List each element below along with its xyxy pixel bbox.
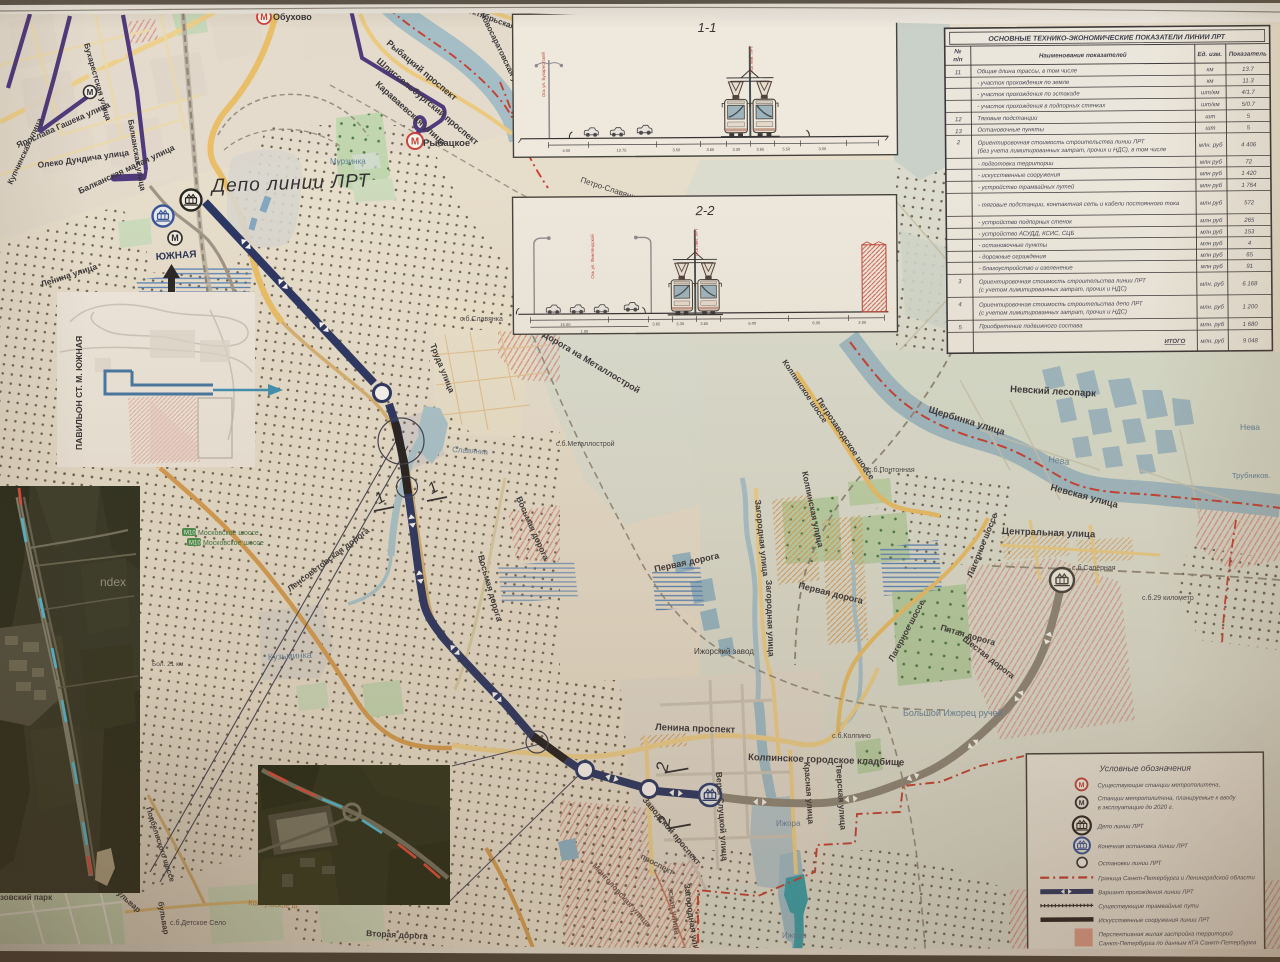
svg-text:Условные обозначения: Условные обозначения [1098, 763, 1191, 774]
svg-text:Депо линии ЛРТ: Депо линии ЛРТ [1097, 824, 1145, 830]
svg-text:4/1.7: 4/1.7 [1241, 90, 1255, 96]
svg-text:М10: М10 [184, 531, 196, 537]
svg-text:- участок прохождения в подпор: - участок прохождения в подпорных стенка… [977, 103, 1106, 110]
svg-text:Рыбацкое: Рыбацкое [423, 138, 470, 149]
svg-text:3.30: 3.30 [676, 321, 685, 326]
svg-text:млн руб: млн руб [1200, 230, 1223, 236]
svg-text:3.65: 3.65 [706, 147, 715, 152]
svg-text:91: 91 [1246, 264, 1253, 270]
svg-text:с.б.Колпино: с.б.Колпино [832, 732, 871, 740]
svg-text:шт/км: шт/км [1201, 90, 1220, 96]
svg-text:с.б.Сапёрная: с.б.Сапёрная [1072, 564, 1116, 572]
svg-text:- устройство АСУДД, КСИС, СЦБ: - устройство АСУДД, КСИС, СЦБ [978, 230, 1074, 238]
svg-text:млн руб: млн руб [1200, 253, 1223, 259]
svg-text:млн. руб: млн. руб [1200, 282, 1224, 288]
svg-text:3.00: 3.00 [818, 146, 827, 151]
svg-text:1 200: 1 200 [1242, 304, 1258, 310]
svg-text:Ось лин. ЛРТ: Ось лин. ЛРТ [749, 45, 754, 73]
svg-text:3.65: 3.65 [756, 147, 765, 152]
svg-text:6.00: 6.00 [748, 321, 757, 326]
svg-text:265: 265 [1243, 218, 1255, 224]
svg-text:Показатель: Показатель [1229, 51, 1267, 58]
svg-text:Ось лин. ЛРТ: Ось лин. ЛРТ [694, 228, 699, 256]
svg-text:1 764: 1 764 [1241, 183, 1257, 189]
svg-text:шт/км: шт/км [1201, 102, 1220, 108]
svg-text:Наименование показателей: Наименование показателей [1039, 52, 1127, 60]
svg-text:3.65: 3.65 [700, 321, 709, 326]
svg-text:M: M [1079, 800, 1085, 807]
svg-text:15.00: 15.00 [560, 322, 571, 327]
svg-text:Общая длина трассы, в том числ: Общая длина трассы, в том числе [977, 68, 1078, 75]
svg-text:Остановки линии ЛРТ: Остановки линии ЛРТ [1098, 861, 1163, 867]
svg-text:4.00: 4.00 [562, 148, 571, 153]
svg-text:Граница Санкт-Петербурга и Лен: Граница Санкт-Петербурга и Ленинградской… [1098, 874, 1255, 882]
svg-text:6.00: 6.00 [812, 320, 821, 325]
svg-text:Перспективная жилая застройка: Перспективная жилая застройка территорий [1099, 930, 1234, 938]
svg-text:M: M [1079, 782, 1085, 789]
svg-text:572: 572 [1244, 200, 1255, 206]
svg-text:Приобретение подвижного состав: Приобретение подвижного состава [979, 323, 1083, 330]
svg-text:M: M [260, 12, 268, 22]
svg-text:млн руб: млн руб [1200, 160, 1223, 166]
svg-text:Ед. изм.: Ед. изм. [1198, 51, 1223, 58]
svg-text:3.50: 3.50 [672, 147, 681, 152]
svg-text:- искусственные сооружения: - искусственные сооружения [978, 173, 1061, 180]
svg-text:M: M [411, 136, 419, 147]
svg-text:№: № [954, 48, 962, 55]
svg-text:M: M [87, 88, 94, 97]
svg-text:млн руб: млн руб [1200, 201, 1223, 207]
svg-text:км: км [1206, 67, 1213, 73]
svg-text:72: 72 [1245, 159, 1252, 165]
svg-text:ПАВИЛЬОН СТ. М. ЮЖНАЯ: ПАВИЛЬОН СТ. М. ЮЖНАЯ [74, 336, 84, 450]
svg-text:Ось ул. Финляндской: Ось ул. Финляндской [589, 234, 595, 279]
svg-text:зовский парк: зовский парк [0, 893, 53, 902]
svg-text:Московское шоссе: Московское шоссе [203, 540, 264, 547]
svg-text:шт: шт [1205, 114, 1215, 120]
svg-text:Ижора: Ижора [776, 819, 801, 828]
svg-text:3.65: 3.65 [652, 321, 661, 326]
svg-text:млн. руб: млн. руб [1199, 143, 1223, 149]
svg-text:Существующие трамвайные пути: Существующие трамвайные пути [1098, 903, 1199, 911]
svg-text:5/0.7: 5/0.7 [1242, 102, 1256, 108]
svg-text:- устройство трамвайных путей: - устройство трамвайных путей [978, 183, 1075, 191]
svg-text:Существующие станции метрополи: Существующие станции метрополитена, [1098, 782, 1221, 789]
svg-text:Ижорский завод: Ижорский завод [694, 647, 754, 656]
svg-text:с.б.29 километр: с.б.29 километр [1142, 594, 1194, 602]
svg-text:с.б.Славянка: с.б.Славянка [460, 315, 503, 323]
svg-text:3.30: 3.30 [732, 147, 741, 152]
svg-text:Ижора: Ижора [782, 931, 807, 940]
svg-text:Вариант прохождения линии ЛРТ: Вариант прохождения линии ЛРТ [1098, 890, 1195, 897]
svg-text:ИТОГО: ИТОГО [1164, 339, 1185, 345]
svg-text:Бол. 21 км: Бол. 21 км [152, 661, 184, 668]
svg-text:11.3: 11.3 [1242, 78, 1254, 84]
svg-text:Искусственные сооружения линии: Искусственные сооружения линии ЛРТ [1098, 918, 1211, 925]
svg-text:млн руб: млн руб [1200, 171, 1223, 177]
svg-text:млн. руб: млн. руб [1200, 322, 1224, 328]
svg-text:13: 13 [955, 129, 962, 135]
svg-text:ndex: ndex [100, 575, 126, 589]
svg-text:12: 12 [955, 117, 962, 123]
svg-text:1.00: 1.00 [580, 329, 589, 334]
svg-text:Мурзинка: Мурзинка [330, 157, 366, 166]
svg-text:Московское шоссе: Московское шоссе [198, 530, 259, 537]
svg-text:13.7: 13.7 [1242, 67, 1254, 73]
svg-text:- участок прохождения по земле: - участок прохождения по земле [977, 80, 1070, 87]
svg-text:км: км [1207, 79, 1214, 85]
svg-text:153: 153 [1244, 229, 1255, 235]
svg-text:млн руб: млн руб [1201, 264, 1224, 270]
svg-text:п/п: п/п [953, 56, 963, 63]
svg-text:- участок прохождения по эстак: - участок прохождения по эстакаде [977, 91, 1080, 98]
svg-text:Большой Ижорец ручей: Большой Ижорец ручей [903, 708, 1003, 718]
svg-text:с.б.Металлострой: с.б.Металлострой [556, 440, 615, 448]
svg-text:Обухово: Обухово [273, 12, 312, 22]
svg-text:M: M [171, 233, 179, 243]
svg-text:М10: М10 [189, 541, 201, 547]
svg-text:2: 2 [956, 140, 961, 146]
svg-text:млн руб: млн руб [1200, 183, 1223, 189]
svg-text:1 420: 1 420 [1241, 171, 1257, 177]
svg-text:млн. руб: млн. руб [1200, 339, 1224, 345]
svg-text:- устройство подпорных стенок: - устройство подпорных стенок [978, 218, 1073, 226]
svg-text:11: 11 [955, 70, 961, 76]
svg-text:Станции метрополитена, планиру: Станции метрополитена, планируемые к вво… [1098, 795, 1237, 802]
svg-text:12.75: 12.75 [616, 148, 627, 153]
svg-text:6 168: 6 168 [1242, 281, 1258, 287]
svg-text:Ось ул. Бухарестской: Ось ул. Бухарестской [540, 52, 546, 98]
svg-text:Санкт-Петербурга по данным КГА: Санкт-Петербурга по данным КГА Санкт-Пет… [1099, 940, 1257, 947]
svg-text:- благоустройство и озеленение: - благоустройство и озеленение [979, 264, 1074, 272]
svg-text:млн руб: млн руб [1200, 241, 1223, 247]
svg-text:Трубников.: Трубников. [1232, 471, 1270, 480]
svg-text:Остановочные пункты: Остановочные пункты [977, 127, 1044, 134]
svg-text:- подготовка территории: - подготовка территории [978, 161, 1054, 168]
svg-text:млн руб: млн руб [1200, 218, 1223, 224]
svg-text:1-1: 1-1 [698, 20, 717, 35]
svg-text:1 680: 1 680 [1243, 322, 1259, 328]
svg-text:2.00: 2.00 [858, 320, 867, 325]
svg-text:с.б.Детское Село: с.б.Детское Село [170, 919, 226, 927]
svg-text:2-2: 2-2 [695, 203, 716, 218]
svg-text:Конечная остановка линии ЛРТ: Конечная остановка линии ЛРТ [1098, 844, 1189, 851]
svg-text:шт: шт [1205, 126, 1215, 132]
svg-text:млн. руб: млн. руб [1200, 305, 1224, 311]
svg-text:9 048: 9 048 [1243, 338, 1259, 344]
svg-text:в эксплуатацию до 2020 г.: в эксплуатацию до 2020 г. [1098, 805, 1174, 812]
svg-text:65: 65 [1246, 252, 1253, 258]
svg-text:4 406: 4 406 [1241, 142, 1257, 148]
svg-text:- дорожные ограждения: - дорожные ограждения [979, 254, 1047, 261]
svg-text:Нева: Нева [1240, 422, 1260, 432]
svg-text:Тяговые подстанции: Тяговые подстанции [977, 116, 1038, 123]
svg-text:5.50: 5.50 [782, 146, 791, 151]
svg-text:- остановочные пункты: - остановочные пункты [978, 243, 1047, 250]
